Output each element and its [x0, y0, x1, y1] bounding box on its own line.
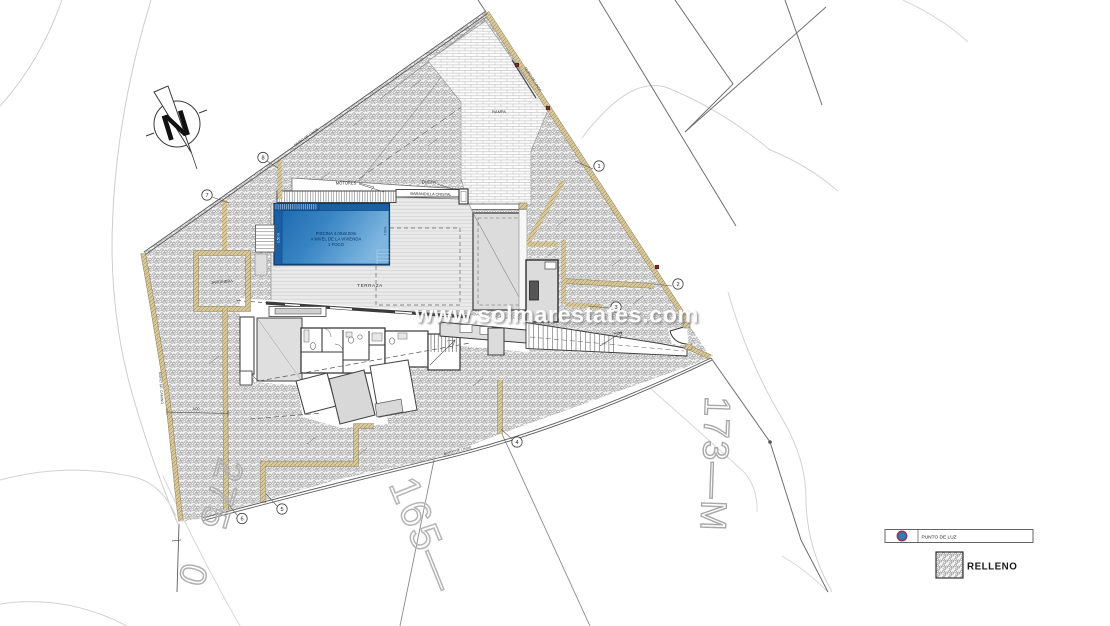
svg-text:MOTORES: MOTORES [336, 181, 357, 186]
svg-text:1: 1 [597, 164, 600, 170]
svg-text:TERRAZA: TERRAZA [357, 283, 383, 288]
svg-text:DUCHA: DUCHA [422, 180, 437, 185]
svg-text:RAMPA: RAMPA [492, 109, 506, 114]
svg-text:7.00m: 7.00m [384, 226, 388, 235]
svg-text:8: 8 [261, 155, 264, 161]
svg-text:RELLENO: RELLENO [967, 562, 1017, 573]
svg-text:2: 2 [676, 282, 679, 288]
svg-text:A NIVEL DE LA VIVIENDA: A NIVEL DE LA VIVIENDA [311, 237, 362, 242]
svg-text:1 FOCO: 1 FOCO [328, 242, 345, 247]
svg-text:3.00: 3.00 [193, 407, 200, 411]
svg-text:PUNTO DE LUZ: PUNTO DE LUZ [922, 534, 957, 540]
svg-text:7: 7 [205, 193, 208, 199]
svg-text:PISCINA 4.00x8.00m: PISCINA 4.00x8.00m [316, 231, 357, 236]
svg-text:4: 4 [515, 440, 518, 446]
svg-text:www.solmarestates.com: www.solmarestates.com [414, 302, 699, 328]
svg-text:5: 5 [280, 507, 283, 513]
svg-text:173—M: 173—M [693, 396, 739, 533]
svg-text:6: 6 [240, 516, 243, 522]
svg-text:1.50 m: 1.50 m [277, 233, 281, 243]
svg-text:165—: 165— [380, 470, 469, 599]
